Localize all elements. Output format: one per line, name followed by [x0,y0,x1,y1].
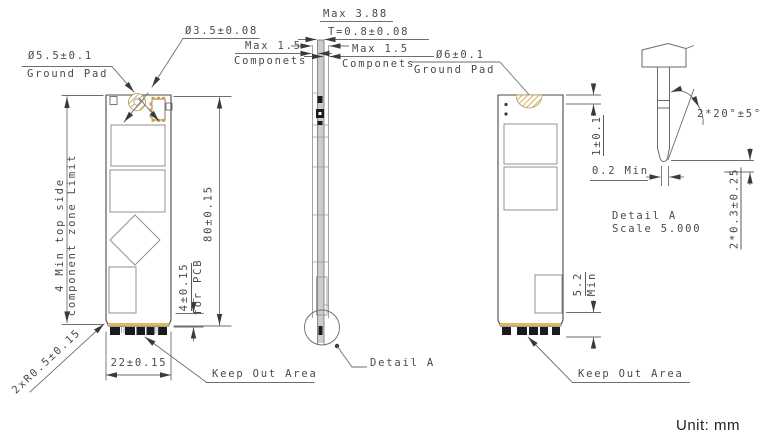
pin-tip [658,148,670,162]
comp-left-caption: Componets [234,55,307,68]
detail-callout-label: Detail A [370,357,435,370]
back-ground-pad-dia-label: Ø6±0.1 [436,49,485,62]
detail-a-title: Detail A [612,210,677,223]
hole-dia-label: Ø3.5±0.08 [185,25,258,38]
thickness-label: T=0.8±0.08 [328,26,409,39]
front-ground-pad-dia-label: Ø5.5±0.1 [28,50,93,63]
back-ground-pad-caption: Ground Pad [414,64,495,77]
edge-connector-pads [110,327,167,335]
width-dim-label: 22±0.15 [104,357,174,370]
chamfer-dim-label: 2*0.3±0.25 [729,164,742,254]
lead-in-angle-label: 2*20°±5° [697,108,760,121]
detail-leader [335,344,367,367]
marker-dot-1 [504,103,507,106]
length-dim-label: 80±0.15 [203,179,216,249]
bottom-zone-dim-label: 5.2 Min [572,259,598,309]
comp-right-caption: Componets [342,58,415,71]
pin-head [642,44,686,68]
top-edge-dim-label: 1±0.1 [591,108,604,163]
comp-right-max-label: Max 1.5 [352,43,409,56]
detail-a-scale: Scale 5.000 [612,223,701,236]
lead-in-slant [668,89,694,160]
pcb-edge-dim-label: 4±0.15 for PCB [178,257,204,317]
front-ground-pad-caption: Ground Pad [27,68,108,81]
edge-connector-pads-back [502,327,560,335]
comp-left-max-label: Max 1.5 [245,40,302,53]
unit-note: Unit: mm [676,417,740,434]
gold-edge-strip-back [500,323,561,326]
max-height-label: Max 3.88 [323,8,388,21]
mechanical-drawing-page: Ø5.5±0.1 Ground Pad Ø3.5±0.08 4 Min top … [0,0,760,441]
pin-stem [658,67,670,162]
pcb-outline-front [106,95,171,326]
keep-out-label-left: Keep Out Area [212,368,318,381]
width-dim [106,332,171,380]
keep-out-label-right: Keep Out Area [578,368,684,381]
marker-dot-2 [504,112,507,115]
component-zone-limit-label: 4 Min top side component zone Limit [53,145,79,325]
tip-width-label: 0.2 Min [592,165,649,178]
gold-edge-strip [108,323,169,326]
pcb-core [318,40,325,343]
